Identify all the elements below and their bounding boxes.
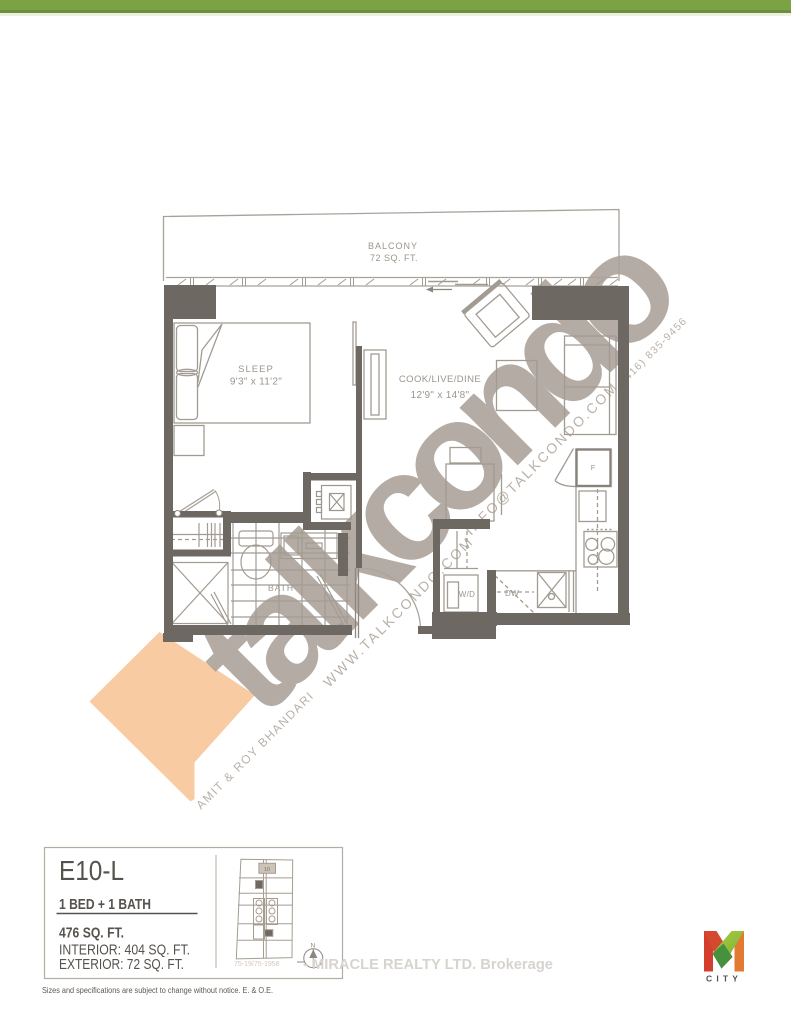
svg-text:W/D: W/D [459, 590, 475, 599]
svg-text:476 SQ. FT.: 476 SQ. FT. [59, 925, 124, 942]
svg-text:F: F [591, 463, 596, 472]
svg-text:72 SQ. FT.: 72 SQ. FT. [370, 253, 418, 263]
svg-text:12'9" x 14'8": 12'9" x 14'8" [411, 390, 470, 401]
svg-text:- MIRACLE REALTY LTD. Brokerag: - MIRACLE REALTY LTD. Brokerage [303, 957, 553, 973]
svg-text:Sizes and specifications are s: Sizes and specifications are subject to … [42, 986, 273, 995]
svg-text:CITY: CITY [706, 974, 742, 984]
svg-text:N: N [311, 943, 316, 950]
svg-text:1 BED + 1 BATH: 1 BED + 1 BATH [59, 896, 151, 913]
svg-text:COOK/LIVE/DINE: COOK/LIVE/DINE [399, 374, 481, 385]
svg-text:EXTERIOR: 72 SQ. FT.: EXTERIOR: 72 SQ. FT. [59, 957, 184, 973]
svg-text:75-19/75-1958: 75-19/75-1958 [234, 961, 280, 968]
svg-text:10: 10 [264, 867, 270, 873]
svg-text:BALCONY: BALCONY [368, 241, 418, 251]
svg-text:E10-L: E10-L [59, 855, 124, 886]
svg-text:SLEEP: SLEEP [238, 364, 274, 375]
svg-text:9'3" x 11'2": 9'3" x 11'2" [230, 377, 282, 388]
